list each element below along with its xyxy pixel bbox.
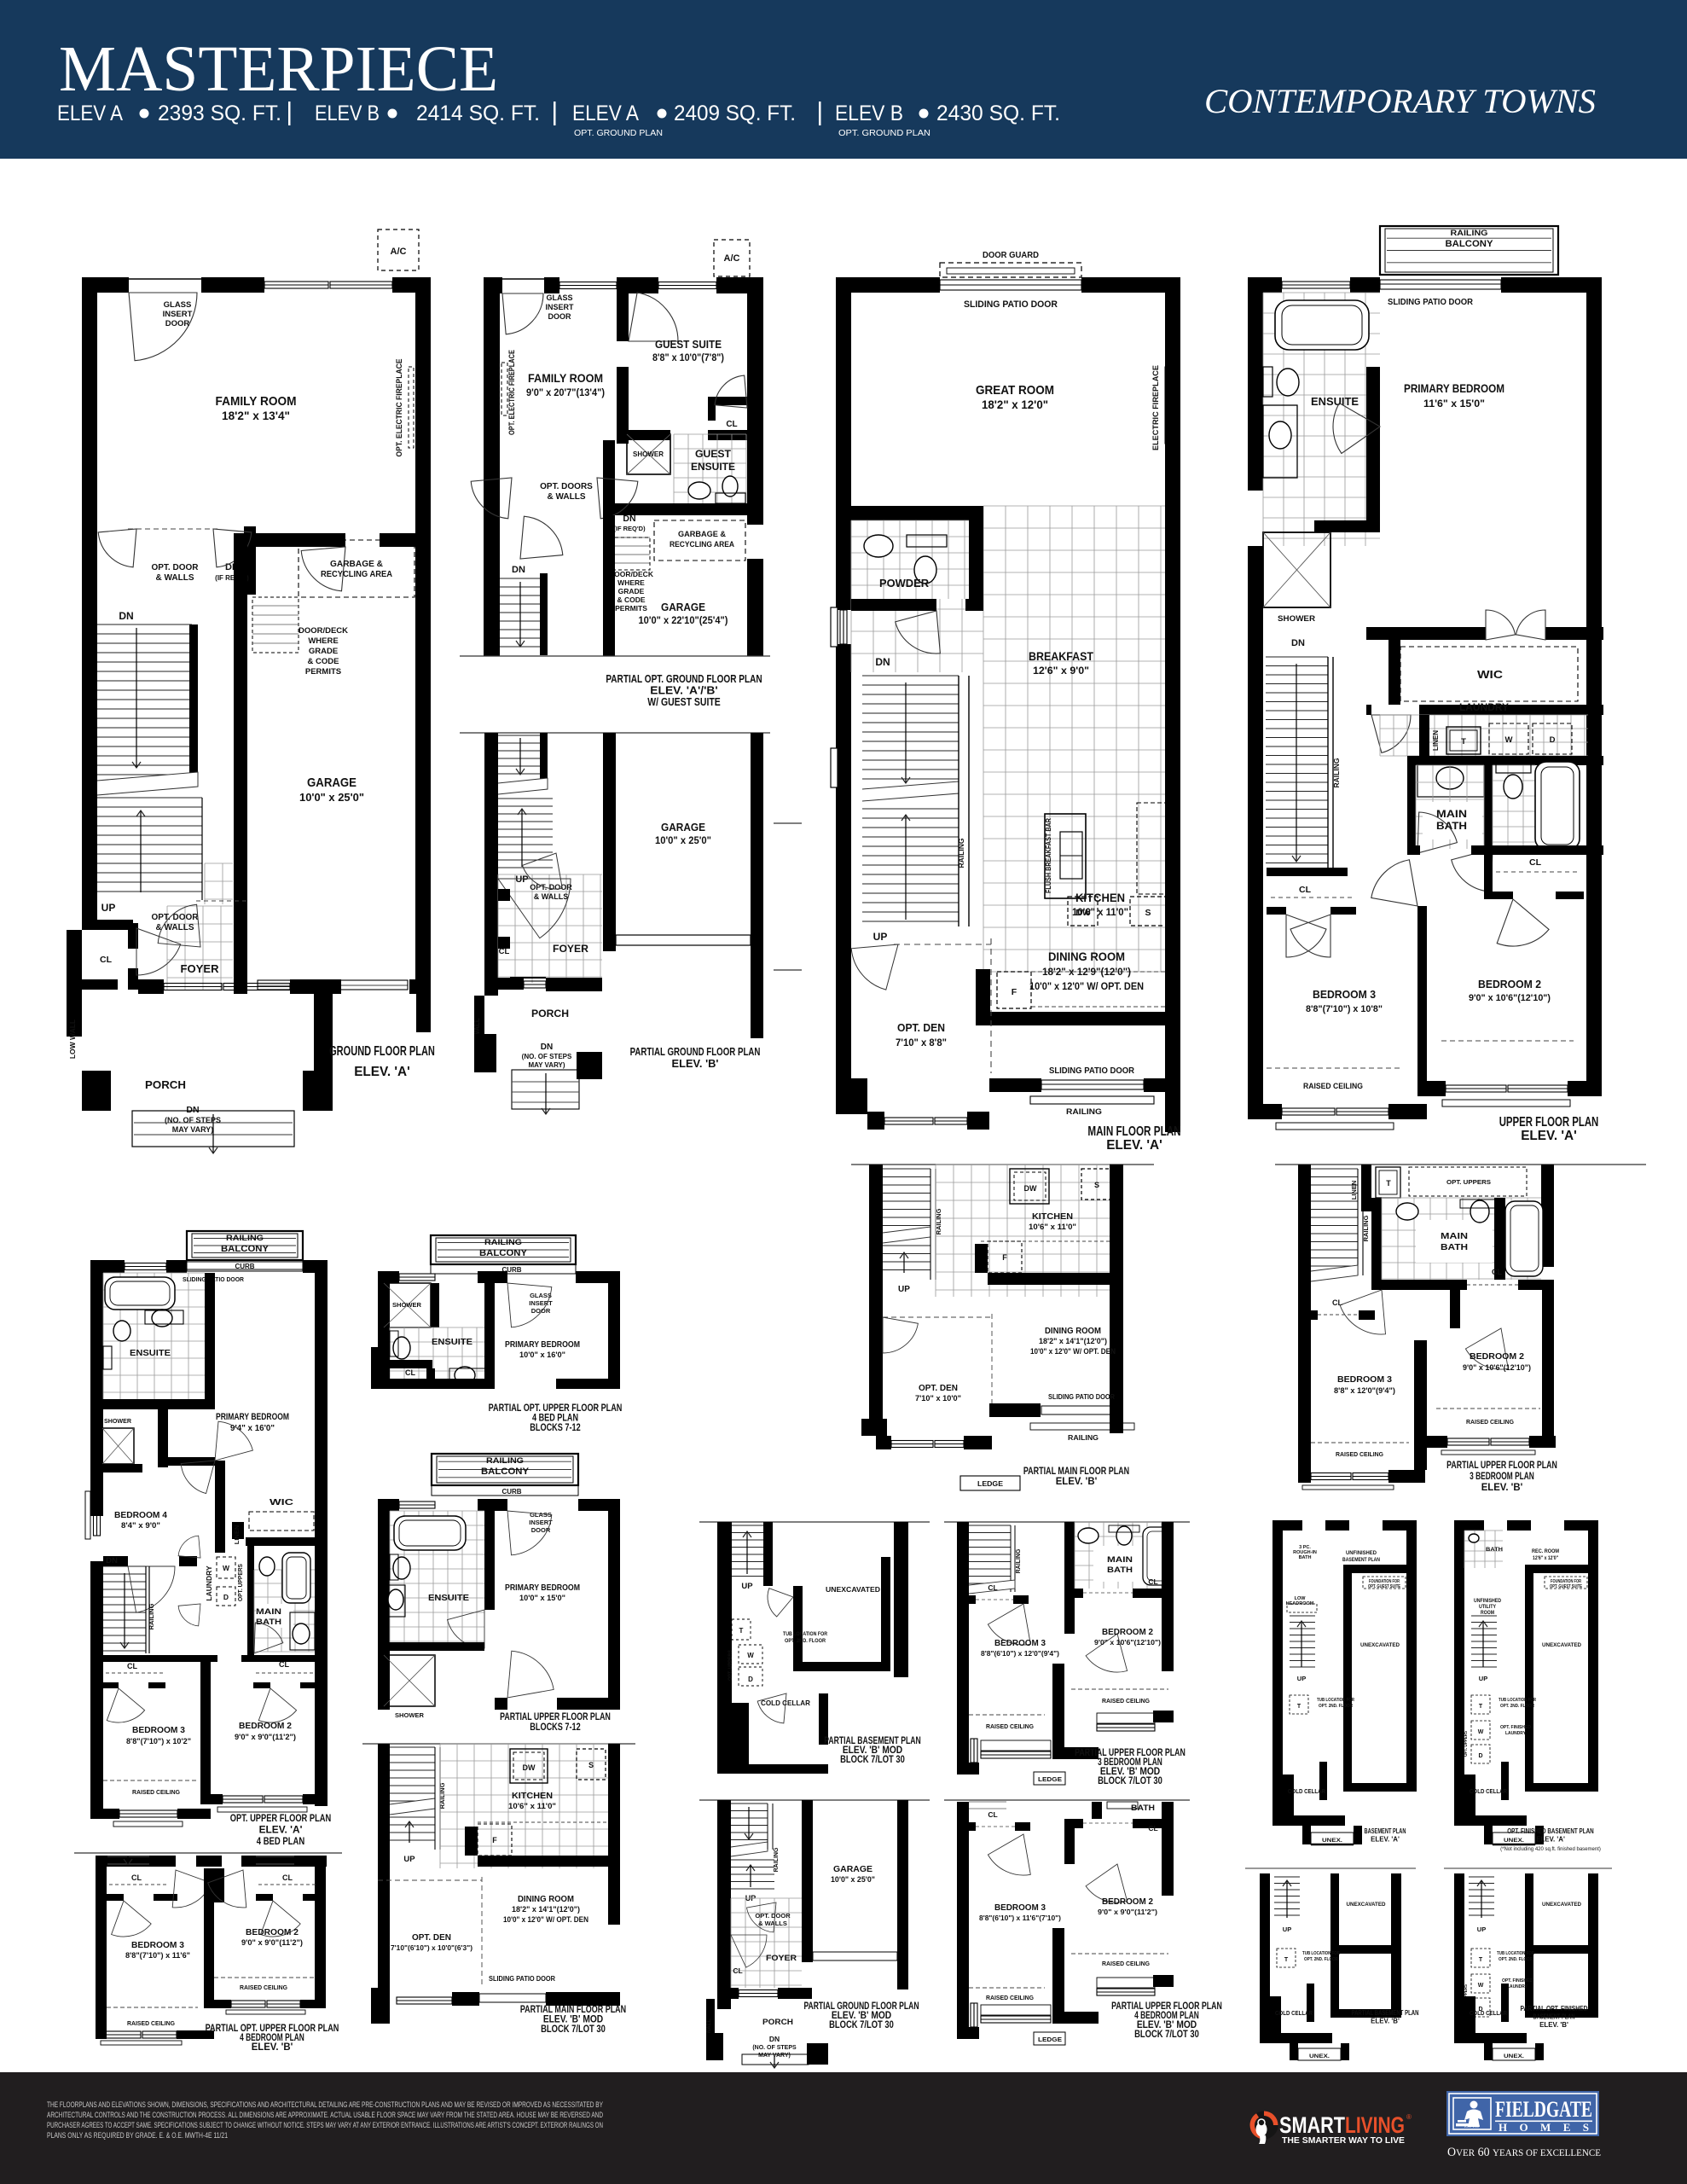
svg-text:T: T	[1386, 1179, 1391, 1188]
svg-text:RAILING: RAILING	[486, 1456, 524, 1466]
svg-text:BLOCK 7/LOT 30: BLOCK 7/LOT 30	[541, 2024, 606, 2035]
svg-text:FOYER: FOYER	[766, 1954, 797, 1963]
svg-text:S: S	[1145, 908, 1151, 918]
svg-text:KITCHEN: KITCHEN	[1032, 1211, 1073, 1222]
svg-text:10'6" x 11'0": 10'6" x 11'0"	[1029, 1223, 1076, 1232]
svg-text:TUB LOCATION FOR: TUB LOCATION FOR	[783, 1631, 827, 1637]
svg-text:10'0" x 15'0": 10'0" x 15'0"	[519, 1594, 565, 1603]
svg-text:ELECTRIC FIREPLACE: ELECTRIC FIREPLACE	[1151, 365, 1161, 450]
svg-text:GARBAGE &: GARBAGE &	[330, 560, 383, 569]
svg-text:PURCHASER AGREES TO ACCEPT SAM: PURCHASER AGREES TO ACCEPT SAME. SPECIFI…	[47, 2121, 603, 2129]
svg-text:RAILING: RAILING	[774, 1847, 780, 1872]
svg-text:UP: UP	[403, 1855, 415, 1864]
svg-text:ROOM: ROOM	[1481, 1611, 1494, 1616]
svg-text:S: S	[588, 1761, 594, 1769]
svg-text:OPT. UPPERS: OPT. UPPERS	[238, 1564, 244, 1601]
svg-text:4 BED PLAN: 4 BED PLAN	[257, 1835, 304, 1847]
svg-text:10'0" x 22'10"(25'4"): 10'0" x 22'10"(25'4")	[639, 616, 728, 626]
svg-text:DINING ROOM: DINING ROOM	[1048, 950, 1125, 963]
svg-text:OPT. 2ND. FLOOR: OPT. 2ND. FLOOR	[785, 1638, 826, 1644]
svg-text:FAMILY ROOM: FAMILY ROOM	[216, 394, 297, 409]
svg-text:GREAT ROOM: GREAT ROOM	[976, 383, 1054, 398]
svg-text:ENSUITE: ENSUITE	[691, 461, 735, 473]
svg-text:PRIMARY BEDROOM: PRIMARY BEDROOM	[505, 1583, 580, 1593]
svg-text:GARAGE: GARAGE	[661, 821, 705, 834]
svg-text:BASEMENT PLAN: BASEMENT PLAN	[1365, 1827, 1406, 1835]
svg-text:MASTERPIECE: MASTERPIECE	[59, 33, 498, 105]
svg-text:9'0" x 10'6"(12'10"): 9'0" x 10'6"(12'10")	[1463, 1363, 1531, 1372]
svg-text:UNEXCAVATED: UNEXCAVATED	[1347, 1902, 1386, 1908]
svg-text:RAILING: RAILING	[1332, 758, 1341, 787]
svg-text:GLASS: GLASS	[164, 300, 192, 310]
svg-text:RAISED CEILING: RAISED CEILING	[127, 2019, 175, 2027]
svg-text:CL: CL	[733, 1966, 742, 1975]
svg-text:ELEV. 'A': ELEV. 'A'	[1521, 1129, 1577, 1143]
svg-text:BLOCK 7/LOT 30: BLOCK 7/LOT 30	[1134, 2030, 1199, 2040]
svg-text:CL: CL	[988, 1810, 997, 1819]
svg-text:INSERT: INSERT	[163, 310, 193, 319]
svg-text:(*Not including 420 sq.ft. fin: (*Not including 420 sq.ft. finished base…	[1500, 1847, 1601, 1852]
svg-text:SMART: SMART	[1279, 2112, 1345, 2138]
svg-text:D: D	[223, 1593, 229, 1601]
svg-text:W: W	[747, 1652, 754, 1659]
svg-text:F: F	[1012, 987, 1017, 997]
svg-text:LINEN: LINEN	[233, 1525, 241, 1545]
svg-text:2393 SQ. FT.: 2393 SQ. FT.	[158, 102, 281, 125]
svg-text:W: W	[223, 1564, 230, 1572]
svg-text:LAUNDRY: LAUNDRY	[1507, 1984, 1528, 1989]
svg-text:LINEN: LINEN	[1432, 730, 1440, 751]
svg-text:UP: UP	[1477, 1926, 1486, 1933]
svg-text:OPT. 2ND. FLOOR: OPT. 2ND. FLOOR	[1304, 1957, 1338, 1962]
svg-text:F: F	[1002, 1253, 1007, 1262]
svg-text:OPT. DOOR: OPT. DOOR	[151, 563, 199, 572]
svg-text:KITCHEN: KITCHEN	[512, 1791, 553, 1801]
svg-text:T: T	[1479, 1957, 1483, 1963]
svg-text:RAILING: RAILING	[438, 1782, 446, 1809]
svg-text:T: T	[1297, 1704, 1301, 1710]
svg-text:OPT. UPPERS: OPT. UPPERS	[1464, 1730, 1469, 1757]
svg-text:DOOR GUARD: DOOR GUARD	[983, 251, 1039, 260]
svg-text:RAILING: RAILING	[1016, 1548, 1022, 1573]
svg-text:D: D	[1478, 1753, 1482, 1759]
svg-text:RAISED CEILING: RAISED CEILING	[1102, 1960, 1150, 1967]
svg-text:COLD CELLAR: COLD CELLAR	[1470, 1789, 1507, 1795]
svg-text:8'8" x 12'0"(9'4"): 8'8" x 12'0"(9'4")	[1334, 1386, 1395, 1395]
svg-text:UNEX.: UNEX.	[1504, 1838, 1524, 1844]
svg-text:PARTIAL MAIN FLOOR PLAN: PARTIAL MAIN FLOOR PLAN	[1023, 1467, 1129, 1477]
svg-text:W: W	[1478, 1983, 1484, 1989]
svg-text:PERMITS: PERMITS	[305, 667, 341, 677]
svg-text:DN: DN	[119, 610, 133, 622]
svg-text:BEDROOM 3: BEDROOM 3	[994, 1639, 1046, 1648]
svg-text:DN: DN	[875, 656, 890, 668]
svg-text:HEADROOM: HEADROOM	[1286, 1601, 1314, 1606]
svg-text:& WALLS: & WALLS	[758, 1920, 787, 1927]
svg-text:CL: CL	[988, 1583, 997, 1592]
svg-text:DN: DN	[623, 514, 635, 524]
svg-text:& WALLS: & WALLS	[156, 573, 194, 583]
svg-text:10'0" x 25'0": 10'0" x 25'0"	[299, 791, 364, 804]
svg-text:CL: CL	[1492, 1268, 1502, 1276]
svg-text:LINEN: LINEN	[1350, 1181, 1358, 1200]
svg-text:BATH: BATH	[1486, 1548, 1503, 1553]
svg-text:TUB LOCATION FOR: TUB LOCATION FOR	[1302, 1951, 1340, 1956]
svg-text:H O M E S: H O M E S	[1499, 2121, 1589, 2134]
svg-text:BEDROOM 3: BEDROOM 3	[994, 1903, 1046, 1913]
svg-text:PLANS ONLY AS REQUIRED BY GRAD: PLANS ONLY AS REQUIRED BY GRADE. E. & O.…	[47, 2131, 228, 2140]
svg-text:OPT. GROUND PLAN: OPT. GROUND PLAN	[838, 128, 930, 138]
svg-text:CL: CL	[1529, 857, 1542, 868]
svg-text:SHOWER: SHOWER	[633, 450, 664, 458]
svg-text:DW: DW	[1024, 1184, 1037, 1193]
svg-text:PARTIAL BASEMENT PLAN: PARTIAL BASEMENT PLAN	[1352, 2009, 1419, 2017]
svg-text:BEDROOM 2: BEDROOM 2	[1478, 978, 1541, 990]
svg-text:DN: DN	[541, 1043, 553, 1052]
svg-text:2414 SQ. FT.: 2414 SQ. FT.	[416, 102, 540, 125]
svg-text:(NO. OF STEPS: (NO. OF STEPS	[752, 2045, 797, 2051]
svg-text:®: ®	[1406, 2113, 1412, 2121]
svg-text:CL: CL	[131, 1873, 142, 1882]
svg-text:BATH: BATH	[1299, 1555, 1312, 1560]
svg-text:PERMITS: PERMITS	[615, 604, 647, 613]
svg-text:ENSUITE: ENSUITE	[130, 1348, 171, 1358]
svg-text:ARCHITECTURAL CONTROLS AND THE: ARCHITECTURAL CONTROLS AND THE CONSTRUCT…	[47, 2111, 603, 2119]
svg-text:UNEX.: UNEX.	[1504, 2053, 1524, 2059]
svg-text:BALCONY: BALCONY	[481, 1467, 530, 1477]
svg-text:BALCONY: BALCONY	[479, 1248, 528, 1258]
svg-text:OPT. GUEST SUITE: OPT. GUEST SUITE	[1550, 1584, 1583, 1589]
svg-text:10'0" x 16'0": 10'0" x 16'0"	[519, 1350, 565, 1360]
svg-text:CL: CL	[282, 1873, 293, 1882]
svg-text:PORCH: PORCH	[145, 1079, 186, 1091]
svg-text:CL: CL	[726, 420, 737, 429]
svg-text:9'0" x 10'6"(12'10"): 9'0" x 10'6"(12'10")	[1094, 1638, 1161, 1647]
svg-text:DN: DN	[1291, 638, 1305, 648]
svg-text:& CODE: & CODE	[308, 657, 339, 666]
svg-text:COLD CELLAR: COLD CELLAR	[1275, 2011, 1313, 2017]
svg-text:UTILITY: UTILITY	[1479, 1605, 1496, 1610]
svg-text:RAILING: RAILING	[1066, 1107, 1102, 1117]
svg-text:FAMILY ROOM: FAMILY ROOM	[528, 371, 603, 385]
svg-text:10'0" x 12'0" W/ OPT. DEN: 10'0" x 12'0" W/ OPT. DEN	[1030, 1347, 1116, 1356]
svg-text:7'10" x 8'8": 7'10" x 8'8"	[896, 1038, 947, 1048]
svg-text:12'6" x 9'0": 12'6" x 9'0"	[1033, 665, 1089, 677]
svg-text:DOOR: DOOR	[165, 319, 190, 328]
svg-text:RAISED CEILING: RAISED CEILING	[1303, 1082, 1363, 1090]
svg-text:RAISED CEILING: RAISED CEILING	[132, 1788, 180, 1796]
svg-text:ELEV. 'A': ELEV. 'A'	[1106, 1138, 1162, 1153]
svg-text:A/C: A/C	[391, 247, 407, 257]
svg-text:UNFINISHED: UNFINISHED	[1474, 1599, 1502, 1604]
svg-text:OPT. UPPERS: OPT. UPPERS	[728, 1650, 733, 1681]
svg-text:BEDROOM 2: BEDROOM 2	[246, 1927, 299, 1937]
svg-text:7'10" x 10'0": 7'10" x 10'0"	[915, 1394, 961, 1403]
svg-text:DOOR: DOOR	[531, 1307, 551, 1315]
svg-text:8'8"(7'10") x 10'8": 8'8"(7'10") x 10'8"	[1306, 1004, 1383, 1014]
svg-text:18'2" x 12'0": 18'2" x 12'0"	[982, 398, 1048, 411]
svg-text:DINING ROOM: DINING ROOM	[518, 1894, 574, 1904]
svg-text:INSERT: INSERT	[529, 1299, 553, 1307]
svg-text:BLOCKS 7-12: BLOCKS 7-12	[530, 1423, 581, 1433]
svg-text:WIC: WIC	[270, 1497, 294, 1507]
svg-text:KITCHEN: KITCHEN	[1075, 892, 1125, 904]
svg-text:CL: CL	[100, 955, 113, 965]
svg-text:OPT. GUEST SUITE: OPT. GUEST SUITE	[1368, 1584, 1401, 1589]
svg-text:& CODE: & CODE	[617, 595, 645, 604]
svg-text:BATH: BATH	[256, 1618, 281, 1627]
svg-text:ENSUITE: ENSUITE	[1311, 395, 1359, 408]
svg-text:SHOWER: SHOWER	[392, 1303, 421, 1309]
svg-text:UNEXCAVATED: UNEXCAVATED	[826, 1585, 880, 1594]
svg-text:ELEV A: ELEV A	[57, 102, 123, 125]
svg-text:8'8"(7'10") x 10'2": 8'8"(7'10") x 10'2"	[126, 1737, 191, 1745]
svg-text:MAY VARY): MAY VARY)	[528, 1061, 565, 1069]
svg-text:ELEV. 'B': ELEV. 'B'	[672, 1057, 719, 1070]
svg-text:TUB LOCATION FOR: TUB LOCATION FOR	[1317, 1698, 1354, 1703]
svg-text:A/C: A/C	[724, 253, 740, 264]
svg-text:T: T	[1479, 1704, 1483, 1710]
svg-text:FOYER: FOYER	[181, 963, 219, 975]
svg-text:OPT. DOORS: OPT. DOORS	[540, 482, 593, 491]
svg-text:BEDROOM 2: BEDROOM 2	[239, 1721, 292, 1731]
svg-text:CL: CL	[1299, 885, 1312, 895]
svg-text:LAUNDRY: LAUNDRY	[205, 1565, 213, 1601]
svg-text:PARTIAL UPPER FLOOR PLAN: PARTIAL UPPER FLOOR PLAN	[500, 1712, 611, 1722]
svg-text:RAILING: RAILING	[226, 1234, 264, 1243]
svg-text:18'2" x 14'1"(12'0"): 18'2" x 14'1"(12'0")	[512, 1905, 580, 1914]
svg-text:W: W	[1478, 1729, 1484, 1735]
svg-text:RECYCLING AREA: RECYCLING AREA	[670, 540, 734, 549]
svg-text:RAILING: RAILING	[484, 1238, 522, 1247]
svg-text:SLIDING PATIO DOOR: SLIDING PATIO DOOR	[1049, 1066, 1135, 1076]
svg-text:ELEV. 'A': ELEV. 'A'	[1371, 1836, 1400, 1844]
svg-text:D: D	[748, 1676, 753, 1683]
svg-text:8'8"(6'10") x 11'6"(7'10"): 8'8"(6'10") x 11'6"(7'10")	[979, 1914, 1061, 1922]
svg-text:OPT. 2ND. FLOOR: OPT. 2ND. FLOOR	[1499, 1957, 1533, 1962]
svg-text:RECYCLING AREA: RECYCLING AREA	[321, 570, 392, 579]
svg-text:DN: DN	[186, 1105, 199, 1115]
svg-text:GRADE: GRADE	[618, 587, 645, 595]
svg-text:INSERT: INSERT	[545, 303, 574, 311]
svg-text:WHERE: WHERE	[617, 578, 645, 587]
svg-text:BLOCKS 7-12: BLOCKS 7-12	[530, 1722, 581, 1733]
svg-text:BLOCK 7/LOT 30: BLOCK 7/LOT 30	[840, 1755, 905, 1765]
svg-text:9'0" x 9'0"(11'2"): 9'0" x 9'0"(11'2")	[235, 1733, 296, 1741]
svg-text:10'6" x 11'0": 10'6" x 11'0"	[508, 1802, 556, 1811]
svg-text:UP: UP	[873, 931, 888, 943]
svg-text:GARBAGE &: GARBAGE &	[678, 530, 726, 539]
svg-text:UNEXCAVATED: UNEXCAVATED	[1360, 1642, 1400, 1648]
svg-text:BASEMENT PLAN: BASEMENT PLAN	[1342, 1557, 1380, 1563]
svg-text:4 BED PLAN: 4 BED PLAN	[532, 1414, 578, 1424]
svg-text:W/ GUEST SUITE: W/ GUEST SUITE	[647, 695, 721, 708]
svg-text:DN: DN	[512, 565, 525, 575]
svg-text:S: S	[1094, 1181, 1099, 1189]
svg-text:MAIN FLOOR PLAN: MAIN FLOOR PLAN	[1087, 1124, 1180, 1139]
svg-text:UP: UP	[515, 874, 528, 885]
svg-text:9'0" x 9'0"(11'2"): 9'0" x 9'0"(11'2")	[1098, 1908, 1157, 1916]
svg-text:PORCH: PORCH	[762, 2018, 793, 2027]
svg-text:ELEV. 'B': ELEV. 'B'	[252, 2042, 293, 2053]
svg-text:SHOWER: SHOWER	[104, 1419, 131, 1425]
svg-text:10'0" x 12'0" W/ OPT. DEN: 10'0" x 12'0" W/ OPT. DEN	[503, 1915, 588, 1924]
svg-text:CONTEMPORARY TOWNS: CONTEMPORARY TOWNS	[1204, 82, 1596, 120]
svg-text:BEDROOM 2: BEDROOM 2	[1102, 1897, 1153, 1907]
svg-text:OPT. 2ND. FLOOR: OPT. 2ND. FLOOR	[1500, 1704, 1534, 1709]
svg-text:UNEXCAVATED: UNEXCAVATED	[1542, 1642, 1581, 1648]
svg-text:GARAGE: GARAGE	[661, 601, 705, 613]
svg-text:CL: CL	[405, 1368, 415, 1377]
svg-text:ELEV. 'B': ELEV. 'B'	[1481, 1483, 1523, 1493]
svg-text:RAISED CEILING: RAISED CEILING	[240, 1984, 287, 1991]
svg-text:RAISED CEILING: RAISED CEILING	[1336, 1450, 1383, 1458]
svg-text:WHERE: WHERE	[308, 636, 338, 646]
svg-text:18'2" x 14'1"(12'0"): 18'2" x 14'1"(12'0")	[1039, 1337, 1107, 1345]
svg-text:PARTIAL OPT. FINISHED: PARTIAL OPT. FINISHED	[1521, 2005, 1588, 2013]
svg-text:BEDROOM 2: BEDROOM 2	[1470, 1351, 1524, 1362]
svg-text:EST. 1957: EST. 1957	[1464, 2124, 1481, 2129]
svg-text:ENSUITE: ENSUITE	[428, 1593, 469, 1603]
svg-text:THE SMARTER WAY TO LIVE: THE SMARTER WAY TO LIVE	[1282, 2136, 1405, 2146]
svg-text:UPPER FLOOR PLAN: UPPER FLOOR PLAN	[1499, 1115, 1599, 1130]
svg-text:CL: CL	[279, 1660, 289, 1669]
svg-text:LEDGE: LEDGE	[1038, 2036, 1062, 2043]
svg-text:BALCONY: BALCONY	[1446, 239, 1494, 249]
svg-text:10'6" x 11'0": 10'6" x 11'0"	[1072, 908, 1128, 918]
svg-text:UP: UP	[898, 1285, 910, 1294]
svg-text:COLD CELLAR: COLD CELLAR	[1470, 2011, 1507, 2017]
svg-text:9'0" x 20'7"(13'4"): 9'0" x 20'7"(13'4")	[526, 386, 605, 398]
svg-text:ELEV A: ELEV A	[572, 102, 639, 125]
svg-text:(NO. OF STEPS: (NO. OF STEPS	[522, 1053, 572, 1060]
svg-text:BLOCK 7/LOT 30: BLOCK 7/LOT 30	[1098, 1776, 1162, 1786]
svg-text:T: T	[1461, 737, 1466, 746]
svg-text:CURB: CURB	[501, 1488, 521, 1496]
svg-text:SLIDING PATIO DOOR: SLIDING PATIO DOOR	[964, 299, 1058, 310]
svg-text:T: T	[1284, 1957, 1289, 1963]
svg-text:& WALLS: & WALLS	[156, 923, 194, 932]
svg-text:MAIN: MAIN	[1441, 1232, 1468, 1241]
svg-text:OPT. UPPER FLOOR PLAN: OPT. UPPER FLOOR PLAN	[230, 1812, 331, 1824]
svg-text:SLIDING PATIO DOOR: SLIDING PATIO DOOR	[1388, 298, 1474, 307]
svg-text:12'6" x 12'0": 12'6" x 12'0"	[1533, 1556, 1558, 1561]
svg-text:9'0" x 10'6"(12'10"): 9'0" x 10'6"(12'10")	[1469, 993, 1551, 1003]
svg-text:OPT. UPPERS: OPT. UPPERS	[1446, 1178, 1491, 1186]
svg-text:T: T	[739, 1627, 744, 1635]
svg-text:CL: CL	[127, 1662, 137, 1670]
svg-text:RAISED CEILING: RAISED CEILING	[986, 1722, 1034, 1730]
svg-text:GARAGE: GARAGE	[307, 775, 357, 790]
svg-text:TUB LOCATION FOR: TUB LOCATION FOR	[1499, 1698, 1536, 1703]
svg-text:BEDROOM 4: BEDROOM 4	[114, 1510, 167, 1520]
svg-text:CL: CL	[1332, 1298, 1342, 1307]
svg-text:TUB LOCATION FOR: TUB LOCATION FOR	[1497, 1951, 1534, 1956]
svg-text:FOYER: FOYER	[553, 944, 589, 955]
svg-text:BEDROOM 3: BEDROOM 3	[131, 1940, 184, 1950]
svg-text:8'8"(6'10") x 12'0"(9'4"): 8'8"(6'10") x 12'0"(9'4")	[981, 1649, 1059, 1658]
svg-text:UNEXCAVATED: UNEXCAVATED	[1542, 1902, 1581, 1908]
svg-text:GLASS: GLASS	[546, 293, 572, 302]
svg-text:ELEV B: ELEV B	[835, 102, 903, 125]
svg-text:PORCH: PORCH	[531, 1009, 569, 1019]
svg-text:GRADE: GRADE	[309, 647, 338, 656]
svg-text:LOW WALL: LOW WALL	[68, 1019, 77, 1059]
svg-text:OVER 60 YEARS OF EXCELLENCE: OVER 60 YEARS OF EXCELLENCE	[1447, 2146, 1601, 2159]
svg-text:ELEV. 'A': ELEV. 'A'	[1536, 1836, 1565, 1844]
svg-text:ELEV B: ELEV B	[315, 102, 380, 125]
svg-text:LEDGE: LEDGE	[977, 1480, 1004, 1488]
svg-text:2409 SQ. FT.: 2409 SQ. FT.	[674, 102, 796, 125]
svg-text:RAISED CEILING: RAISED CEILING	[1466, 1418, 1514, 1426]
svg-text:10'0" x 25'0": 10'0" x 25'0"	[655, 836, 711, 846]
svg-text:WIC: WIC	[1477, 668, 1504, 681]
svg-text:(IF REQ'D): (IF REQ'D)	[613, 525, 646, 532]
svg-text:BATH: BATH	[1107, 1565, 1133, 1575]
svg-text:PARTIAL OPT. UPPER FLOOR PLAN: PARTIAL OPT. UPPER FLOOR PLAN	[489, 1403, 623, 1414]
svg-text:GARAGE: GARAGE	[833, 1864, 872, 1874]
svg-text:PARTIAL UPPER FLOOR PLAN: PARTIAL UPPER FLOOR PLAN	[1446, 1461, 1557, 1471]
svg-text:10'0" x 12'0" W/ OPT. DEN: 10'0" x 12'0" W/ OPT. DEN	[1029, 980, 1144, 992]
svg-text:OPT. ELECTRIC FIREPLACE: OPT. ELECTRIC FIREPLACE	[507, 350, 516, 435]
svg-text:OPT. DEN: OPT. DEN	[412, 1933, 451, 1943]
svg-text:OPT. DOOR: OPT. DOOR	[755, 1912, 791, 1920]
svg-text:W: W	[1505, 735, 1513, 745]
svg-text:ELEV. 'B': ELEV. 'B'	[1056, 1477, 1098, 1487]
svg-text:18'2" x 12'9"(12'0"): 18'2" x 12'9"(12'0")	[1042, 966, 1131, 978]
svg-text:CL: CL	[1148, 1824, 1157, 1833]
svg-text:UP: UP	[1297, 1675, 1306, 1682]
svg-text:COLD CELLAR: COLD CELLAR	[1288, 1789, 1325, 1795]
svg-text:RAISED CEILING: RAISED CEILING	[986, 1994, 1034, 2001]
svg-text:SHOWER: SHOWER	[395, 1713, 424, 1719]
svg-text:GLASS: GLASS	[530, 1292, 552, 1299]
svg-text:& WALLS: & WALLS	[548, 492, 586, 502]
svg-text:REC. ROOM: REC. ROOM	[1532, 1548, 1559, 1554]
svg-text:BATH: BATH	[1131, 1804, 1155, 1812]
svg-text:UP: UP	[1479, 1675, 1487, 1682]
svg-text:SHOWER: SHOWER	[1278, 614, 1315, 624]
svg-text:3 BEDROOM PLAN: 3 BEDROOM PLAN	[1470, 1472, 1534, 1482]
svg-text:BATH: BATH	[1441, 1243, 1468, 1252]
svg-text:OPT. DOOR: OPT. DOOR	[530, 883, 572, 892]
svg-text:F: F	[492, 1836, 497, 1844]
svg-text:OPT. 2ND. FLOOR: OPT. 2ND. FLOOR	[1319, 1704, 1353, 1709]
svg-text:OPT. FINISHED BASEMENT PLAN: OPT. FINISHED BASEMENT PLAN	[1507, 1827, 1594, 1835]
svg-text:UP: UP	[741, 1582, 753, 1591]
svg-text:DOOR: DOOR	[548, 312, 572, 321]
svg-text:ENSUITE: ENSUITE	[432, 1337, 472, 1347]
svg-text:OPT. DOOR: OPT. DOOR	[151, 913, 199, 922]
svg-text:DOOR/DECK: DOOR/DECK	[609, 570, 654, 578]
svg-text:UNFINISHED: UNFINISHED	[1346, 1550, 1377, 1556]
svg-text:PRIMARY BEDROOM: PRIMARY BEDROOM	[505, 1339, 580, 1350]
svg-text:RAILING: RAILING	[1451, 229, 1488, 238]
svg-text:ELEV. 'A': ELEV. 'A'	[259, 1824, 303, 1836]
svg-text:BALCONY: BALCONY	[221, 1244, 270, 1254]
svg-text:GROUND FLOOR PLAN: GROUND FLOOR PLAN	[329, 1044, 435, 1059]
svg-text:POWDER: POWDER	[879, 578, 929, 590]
svg-text:UNEX.: UNEX.	[1309, 2053, 1330, 2059]
svg-text:LAUNDRY: LAUNDRY	[1459, 703, 1509, 713]
svg-text:ELEV. 'B': ELEV. 'B'	[1371, 2018, 1400, 2025]
svg-text:11'6" x 15'0": 11'6" x 15'0"	[1423, 398, 1485, 409]
svg-text:BEDROOM 3: BEDROOM 3	[1313, 988, 1376, 1001]
svg-text:ELEV. 'B': ELEV. 'B'	[1539, 2021, 1568, 2029]
svg-text:CL: CL	[499, 947, 510, 956]
svg-text:MAIN: MAIN	[1107, 1555, 1133, 1565]
svg-text:SLIDING PATIO DOOR: SLIDING PATIO DOOR	[489, 1975, 555, 1983]
